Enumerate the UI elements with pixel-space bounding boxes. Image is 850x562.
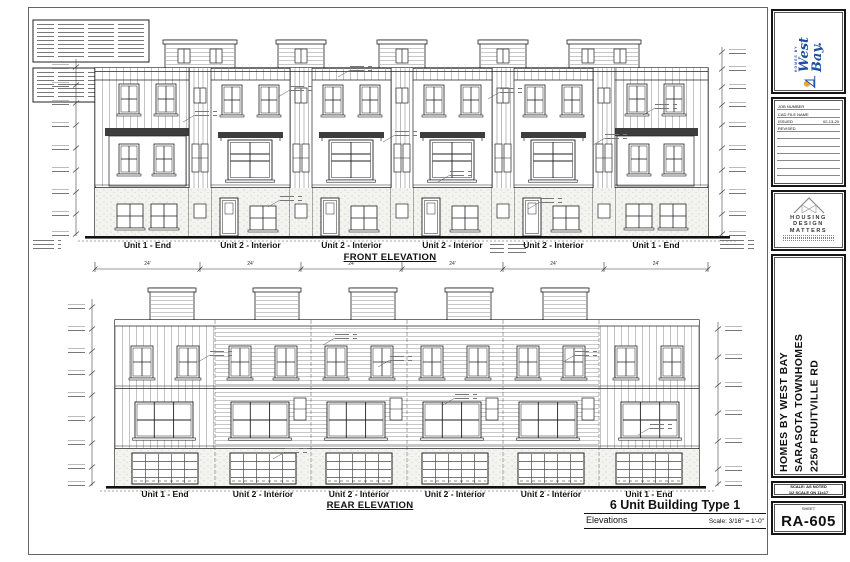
sheet-label: SHEET xyxy=(775,506,842,511)
issued-date: 02-13-20 xyxy=(823,120,839,124)
rear-right-dimensions xyxy=(715,322,742,487)
sheet-number-box: SHEET RA-605 xyxy=(771,501,846,535)
front-unit-label: Unit 2 - Interior xyxy=(398,240,508,250)
revised-label: REVISED xyxy=(778,127,796,131)
rear-unit-label: Unit 2 - Interior xyxy=(208,489,318,499)
front-unit-label: Unit 1 - End xyxy=(93,240,203,250)
front-ground-line xyxy=(85,236,730,239)
scale-note-box: SCALE: AS NOTED 1/2 SCALE ON 11x17 xyxy=(771,481,846,498)
hdm-logo-box: HOUSING DESIGN MATTERS xyxy=(771,190,846,251)
hdm-address-line xyxy=(783,235,835,236)
hdm-name-line: MATTERS xyxy=(790,228,827,234)
project-title-box: HOMES BY WEST BAY SARASOTA TOWNHOMES 225… xyxy=(771,254,846,478)
front-left-dimensions xyxy=(52,59,79,237)
front-dim-label: 24' xyxy=(337,261,367,267)
front-dim-label: 24' xyxy=(438,261,468,267)
westbay-sun-sail-icon xyxy=(801,75,817,89)
front-elevation-drawing xyxy=(33,40,754,272)
front-unit-label: Unit 2 - Interior xyxy=(196,240,306,250)
scale-note-line: 1/2 SCALE ON 11x17 xyxy=(789,490,828,496)
front-unit-label: Unit 1 - End xyxy=(601,240,711,250)
front-dim-label: 24' xyxy=(641,261,671,267)
hdm-address-line xyxy=(783,237,835,238)
hdm-roof-icon xyxy=(792,195,826,215)
issued-label: ISSUED xyxy=(778,120,793,124)
job-number-label: JOB NUMBER xyxy=(778,105,804,109)
front-unit-label: Unit 2 - Interior xyxy=(499,240,609,250)
rear-unit-label: Unit 2 - Interior xyxy=(400,489,510,499)
project-name: SARASOTA TOWNHOMES xyxy=(792,260,807,472)
building-type-title: 6 Unit Building Type 1 xyxy=(584,498,766,512)
front-right-dimensions xyxy=(719,47,746,237)
front-dim-label: 24' xyxy=(539,261,569,267)
westbay-name: West Bay. xyxy=(798,15,824,72)
architectural-sheet: Unit 1 - End Unit 2 - Interior Unit 2 - … xyxy=(0,0,850,562)
front-dim-label: 24' xyxy=(236,261,266,267)
rear-left-dimensions xyxy=(68,299,95,487)
cad-file-label: CAD FILE NAME xyxy=(778,113,809,117)
project-title-vertical: HOMES BY WEST BAY SARASOTA TOWNHOMES 225… xyxy=(777,260,840,472)
front-unit-label: Unit 2 - Interior xyxy=(297,240,407,250)
job-info-box: JOB NUMBER CAD FILE NAME ISSUED02-13-20 … xyxy=(771,97,846,187)
elevation-linework xyxy=(28,7,768,555)
westbay-logo-box: HOMES BY West Bay. xyxy=(771,9,846,94)
project-address: 2250 FRUITVILLE RD xyxy=(807,260,822,472)
titlebar-rule xyxy=(584,513,766,514)
titlebar-rule-bottom xyxy=(584,528,766,529)
project-client: HOMES BY WEST BAY xyxy=(777,260,792,472)
front-width-dimensions xyxy=(93,262,711,272)
drawing-area: Unit 1 - End Unit 2 - Interior Unit 2 - … xyxy=(28,7,768,555)
rear-elevation-title: REAR ELEVATION xyxy=(280,500,460,511)
westbay-logo: HOMES BY West Bay. xyxy=(794,15,824,89)
rear-unit-label: Unit 2 - Interior xyxy=(304,489,414,499)
rear-elevation-drawing xyxy=(68,288,742,491)
rear-unit-label: Unit 1 - End xyxy=(110,489,220,499)
hdm-address-line xyxy=(783,240,835,241)
front-dim-label: 24' xyxy=(133,261,163,267)
sheet-number: RA-605 xyxy=(775,513,842,530)
drawing-scale-note: Scale: 3/16" = 1'-0" xyxy=(584,518,764,525)
